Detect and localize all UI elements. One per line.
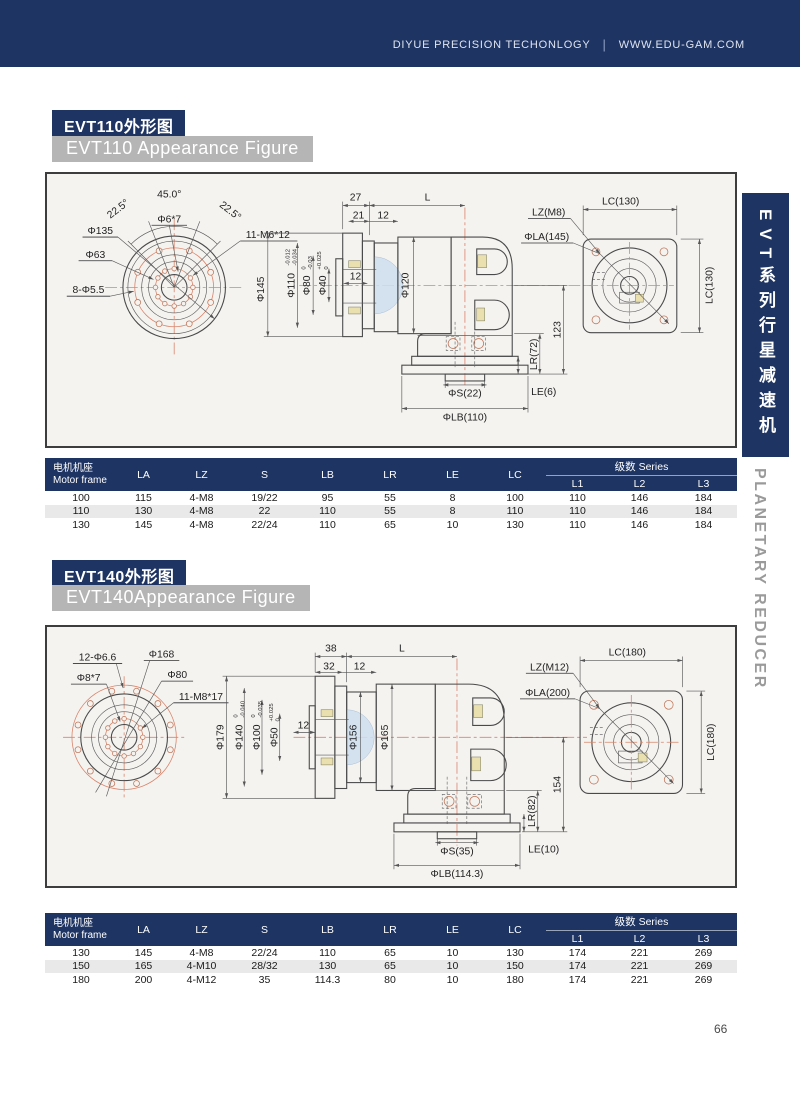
- dim-LE: LE(10): [528, 845, 559, 856]
- col-LC: LC: [484, 458, 546, 491]
- table-cell: 174: [546, 960, 609, 974]
- dim-phi179: Φ179: [216, 724, 227, 750]
- col-L2: L2: [609, 476, 670, 492]
- col-L3: L3: [670, 476, 737, 492]
- col-LR: LR: [359, 913, 421, 946]
- table-cell: 180: [484, 973, 546, 987]
- table-cell: 110: [45, 505, 117, 519]
- dim-phi110: Φ110: [286, 273, 297, 298]
- dim-holes-label: 8-Φ5.5: [73, 285, 105, 296]
- table-cell: 65: [359, 946, 421, 960]
- dim-phi80-tol-lower: -0.03: [308, 255, 314, 269]
- table-cell: 110: [296, 505, 359, 519]
- dim-phi120: Φ120: [401, 272, 412, 298]
- table-cell: 146: [609, 505, 670, 519]
- header-bar: DIYUE PRECISION TECHONLOGY | WWW.EDU-GAM…: [0, 0, 800, 67]
- table-cell: 19/22: [233, 491, 296, 505]
- page-number: 66: [714, 1022, 727, 1036]
- col-LC: LC: [484, 913, 546, 946]
- motor-frame-cn: 电机机座: [53, 463, 93, 474]
- table-cell: 145: [117, 518, 170, 532]
- evt140-table-body: 1301454-M822/241106510130174221269150165…: [45, 946, 737, 987]
- table-cell: 184: [670, 518, 737, 532]
- table-cell: 4-M8: [170, 946, 233, 960]
- evt140-flange-view: LC(180) LC(180) LZ(M12) ΦLA(200): [520, 648, 717, 794]
- evt110-dim-table: 电机机座 Motor frame LA LZ S LB LR LE LC 级数 …: [45, 458, 737, 532]
- header-divider: |: [603, 37, 607, 52]
- dim-12: 12: [354, 661, 366, 672]
- evt110-side-view: 27 L 21 12 Φ145 Φ110 -0.012 -0.034 Φ80 0…: [256, 193, 591, 424]
- table-cell: 130: [45, 518, 117, 532]
- evt110-table-body: 1001154-M819/22955581001101461841101304-…: [45, 491, 737, 532]
- col-LE: LE: [421, 913, 484, 946]
- motor-frame-en: Motor frame: [53, 930, 107, 941]
- dim-phi50-tol-lower: 0: [276, 718, 282, 722]
- evt140-drawing: 12-Φ6.6 Φ168 Φ8*7 Φ80 11-M8*17: [47, 627, 735, 886]
- table-cell: 55: [359, 505, 421, 519]
- table-cell: 8: [421, 505, 484, 519]
- table-cell: 35: [233, 973, 296, 987]
- dim-21: 21: [353, 210, 365, 221]
- dim-angle-top: 45.0°: [157, 190, 181, 201]
- dim-LR: LR(72): [529, 339, 540, 371]
- dim-phi110-tol-lower: -0.034: [292, 248, 298, 265]
- dim-LC-side: LC(130): [704, 267, 715, 304]
- col-L3: L3: [670, 931, 737, 947]
- dim-phi140: Φ140: [234, 724, 245, 750]
- table-cell: 130: [484, 518, 546, 532]
- dim-angle-left: 22.5°: [106, 198, 132, 222]
- dim-phi140-tol-upper: 0: [233, 714, 239, 718]
- col-LE: LE: [421, 458, 484, 491]
- dim-phi50-tol-upper: +0.025: [269, 703, 275, 722]
- table-cell: 10: [421, 960, 484, 974]
- motor-frame-cn: 电机机座: [53, 918, 93, 929]
- table-cell: 100: [484, 491, 546, 505]
- dim-LZ: LZ(M8): [532, 207, 565, 218]
- table-cell: 22/24: [233, 518, 296, 532]
- col-L1: L1: [546, 931, 609, 947]
- dim-LC-side: LC(180): [706, 724, 717, 761]
- table-cell: 80: [359, 973, 421, 987]
- dim-phi168-label: Φ168: [149, 650, 175, 661]
- dim-phiS: ΦS(35): [440, 846, 473, 857]
- table-cell: 4-M8: [170, 491, 233, 505]
- table-cell: 4-M12: [170, 973, 233, 987]
- table-cell: 115: [117, 491, 170, 505]
- table-row: 1301454-M822/241106510130174221269: [45, 946, 737, 960]
- dim-154: 154: [552, 776, 563, 793]
- table-cell: 130: [296, 960, 359, 974]
- dim-phi40: Φ40: [318, 275, 329, 295]
- table-cell: 4-M10: [170, 960, 233, 974]
- table-cell: 221: [609, 946, 670, 960]
- table-cell: 22/24: [233, 946, 296, 960]
- dim-phi80-tol-upper: 0: [301, 266, 307, 270]
- table-cell: 174: [546, 973, 609, 987]
- dim-phi100-tol-lower: -0.035: [258, 700, 264, 717]
- dim-12: 12: [377, 210, 389, 221]
- evt140-drawing-box: 12-Φ6.6 Φ168 Φ8*7 Φ80 11-M8*17: [45, 625, 737, 888]
- series-tab-cn: EVT系列行星减速机: [742, 193, 789, 457]
- table-cell: 10: [421, 946, 484, 960]
- dim-LR: LR(82): [527, 795, 538, 827]
- evt110-drawing: 45.0° 22.5° 22.5° Φ6*7 Φ135 Φ63 8-Φ5.5 1…: [47, 174, 735, 446]
- evt110-drawing-box: 45.0° 22.5° 22.5° Φ6*7 Φ135 Φ63 8-Φ5.5 1…: [45, 172, 737, 448]
- col-motor-frame: 电机机座 Motor frame: [45, 913, 117, 946]
- motor-frame-en: Motor frame: [53, 475, 107, 486]
- dim-LZ: LZ(M12): [530, 662, 569, 673]
- table-cell: 65: [359, 518, 421, 532]
- col-LZ: LZ: [170, 458, 233, 491]
- dim-38: 38: [325, 644, 337, 655]
- table-row: 1501654-M1028/321306510150174221269: [45, 960, 737, 974]
- company-name: DIYUE PRECISION TECHONLOGY: [393, 39, 591, 51]
- col-L2: L2: [609, 931, 670, 947]
- series-label-en: PLANETARY REDUCER: [750, 468, 768, 753]
- table-cell: 22: [233, 505, 296, 519]
- dim-key-label: Φ6*7: [157, 214, 181, 225]
- table-cell: 55: [359, 491, 421, 505]
- table-cell: 4-M8: [170, 518, 233, 532]
- table-cell: 95: [296, 491, 359, 505]
- dim-phi80: Φ80: [302, 275, 313, 295]
- dim-phi165: Φ165: [380, 724, 391, 750]
- table-cell: 110: [484, 505, 546, 519]
- col-LZ: LZ: [170, 913, 233, 946]
- table-cell: 130: [45, 946, 117, 960]
- table-cell: 174: [546, 946, 609, 960]
- dim-angle-right: 22.5°: [217, 200, 243, 224]
- dim-L: L: [425, 193, 431, 204]
- dim-taps-label: 11-M8*17: [179, 692, 223, 703]
- dim-phi80-label: Φ80: [167, 670, 187, 681]
- table-cell: 165: [117, 960, 170, 974]
- dim-phi50: Φ50: [270, 727, 281, 747]
- dim-123: 123: [553, 321, 564, 338]
- table-cell: 146: [609, 491, 670, 505]
- evt110-front-view: 45.0° 22.5° 22.5° Φ6*7 Φ135 Φ63 8-Φ5.5 1…: [67, 190, 298, 357]
- table-cell: 8: [421, 491, 484, 505]
- dim-phiLB: ΦLB(114.3): [431, 869, 484, 880]
- table-cell: 180: [45, 973, 117, 987]
- col-LA: LA: [117, 913, 170, 946]
- dim-phi100-tol-upper: 0: [251, 714, 257, 718]
- col-motor-frame: 电机机座 Motor frame: [45, 458, 117, 491]
- table-cell: 110: [546, 518, 609, 532]
- col-S: S: [233, 913, 296, 946]
- dim-holes-label: 12-Φ6.6: [79, 652, 117, 663]
- col-LB: LB: [296, 458, 359, 491]
- dim-LC-top: LC(180): [609, 648, 646, 659]
- dim-phi110-tol-upper: -0.012: [285, 249, 291, 266]
- header-text: DIYUE PRECISION TECHONLOGY | WWW.EDU-GAM…: [393, 37, 745, 52]
- col-LA: LA: [117, 458, 170, 491]
- table-cell: 28/32: [233, 960, 296, 974]
- dim-phi145: Φ145: [256, 276, 267, 302]
- dim-LE: LE(6): [531, 387, 556, 398]
- evt140-dim-table: 电机机座 Motor frame LA LZ S LB LR LE LC 级数 …: [45, 913, 737, 987]
- dim-phi40-tol-lower: 0: [324, 266, 330, 270]
- evt140-title-en: EVT140Appearance Figure: [52, 585, 310, 611]
- table-cell: 221: [609, 973, 670, 987]
- table-cell: 150: [45, 960, 117, 974]
- table-cell: 269: [670, 973, 737, 987]
- table-cell: 110: [296, 946, 359, 960]
- table-cell: 114.3: [296, 973, 359, 987]
- table-cell: 184: [670, 491, 737, 505]
- table-cell: 110: [296, 518, 359, 532]
- table-cell: 145: [117, 946, 170, 960]
- col-series: 级数 Series: [546, 913, 737, 931]
- table-row: 1802004-M1235114.38010180174221269: [45, 973, 737, 987]
- table-cell: 269: [670, 946, 737, 960]
- col-series: 级数 Series: [546, 458, 737, 476]
- table-cell: 100: [45, 491, 117, 505]
- dim-key-width: 12: [298, 720, 310, 731]
- table-row: 1001154-M819/2295558100110146184: [45, 491, 737, 505]
- dim-27: 27: [350, 193, 362, 204]
- table-cell: 184: [670, 505, 737, 519]
- dim-phi140-tol-lower: -0.040: [240, 700, 246, 717]
- website-link[interactable]: WWW.EDU-GAM.COM: [619, 39, 745, 51]
- table-cell: 10: [421, 973, 484, 987]
- evt110-title-en: EVT110 Appearance Figure: [52, 136, 313, 162]
- dim-phiS: ΦS(22): [448, 389, 482, 400]
- col-S: S: [233, 458, 296, 491]
- dim-phi135-label: Φ135: [88, 226, 114, 237]
- dim-LC-top: LC(130): [602, 197, 639, 208]
- dim-phiLA: ΦLA(145): [524, 232, 569, 243]
- dim-32: 32: [323, 661, 335, 672]
- dim-L: L: [399, 644, 405, 655]
- evt140-front-view: 12-Φ6.6 Φ168 Φ8*7 Φ80 11-M8*17: [63, 650, 228, 801]
- table-cell: 221: [609, 960, 670, 974]
- evt140-side-view: 38 L 32 12 Φ179 Φ140 0 -0.040 Φ100 0 -0.…: [216, 644, 587, 881]
- table-cell: 4-M8: [170, 505, 233, 519]
- table-cell: 150: [484, 960, 546, 974]
- table-cell: 269: [670, 960, 737, 974]
- table-cell: 110: [546, 491, 609, 505]
- evt110-flange-view: LC(130) LC(130) LZ(M8) ΦLA(145): [521, 197, 715, 333]
- table-cell: 130: [117, 505, 170, 519]
- dim-phi63-label: Φ63: [85, 250, 105, 261]
- col-LR: LR: [359, 458, 421, 491]
- table-cell: 146: [609, 518, 670, 532]
- dim-key-label: Φ8*7: [77, 673, 101, 684]
- dim-phiLA: ΦLA(200): [525, 688, 570, 699]
- table-cell: 10: [421, 518, 484, 532]
- col-LB: LB: [296, 913, 359, 946]
- dim-key-width: 12: [350, 271, 362, 282]
- dim-phi40-tol-upper: +0.025: [317, 251, 323, 270]
- dim-phi156: Φ156: [349, 724, 360, 750]
- col-L1: L1: [546, 476, 609, 492]
- table-cell: 130: [484, 946, 546, 960]
- table-row: 1301454-M822/241106510130110146184: [45, 518, 737, 532]
- table-row: 1101304-M822110558110110146184: [45, 505, 737, 519]
- table-cell: 65: [359, 960, 421, 974]
- table-cell: 110: [546, 505, 609, 519]
- table-cell: 200: [117, 973, 170, 987]
- dim-phi100: Φ100: [252, 724, 263, 750]
- dim-phiLB: ΦLB(110): [443, 412, 487, 423]
